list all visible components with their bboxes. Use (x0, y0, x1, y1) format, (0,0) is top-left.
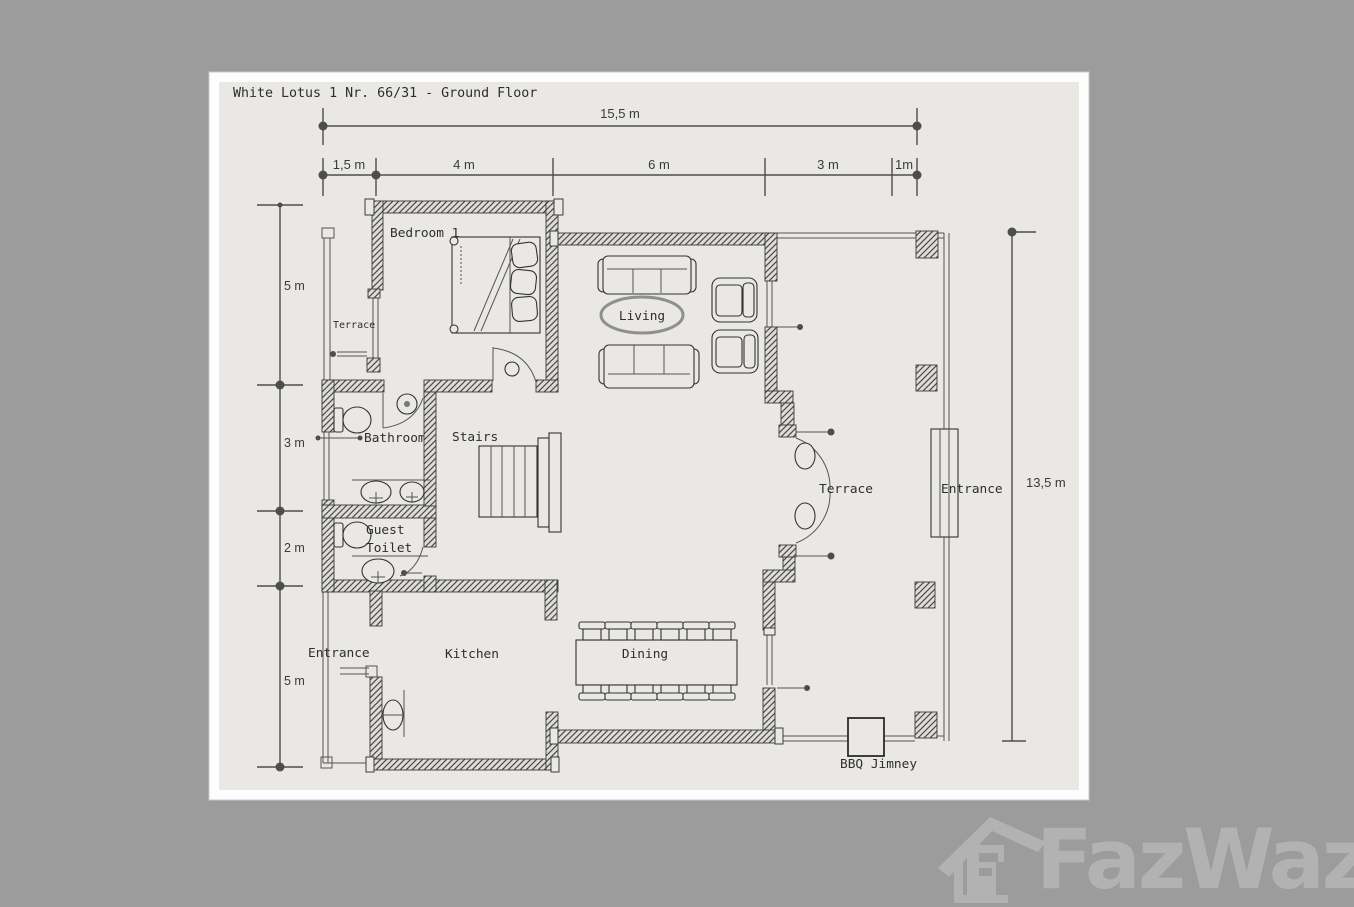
dim-left-3: 2 m (284, 541, 305, 555)
armchair-bottom (712, 330, 758, 373)
room-label-stairs: Stairs (452, 430, 498, 445)
room-label-dining: Dining (622, 647, 668, 662)
room-label-entrance-right: Entrance (941, 482, 1003, 497)
armchair-top (712, 278, 757, 322)
dim-total-width: 15,5 m (600, 106, 640, 121)
dim-left-1: 5 m (284, 279, 305, 293)
dim-seg-2: 4 m (453, 157, 475, 172)
fazwaz-watermark: FazWaz (938, 811, 1354, 907)
fazwaz-logo-text: FazWaz (1036, 811, 1354, 907)
room-label-bathroom: Bathroom (364, 431, 426, 446)
sofa-bottom (599, 345, 699, 388)
room-label-kitchen: Kitchen (445, 647, 499, 662)
dim-total-height: 13,5 m (1026, 475, 1066, 490)
room-label-entrance-left: Entrance (308, 646, 370, 661)
dim-seg-1: 1,5 m (333, 157, 366, 172)
dim-left-4: 5 m (284, 674, 305, 688)
bed (450, 237, 540, 333)
floorplan-svg: FazWaz White Lotus 1 Nr. 66/31 - Ground … (0, 0, 1354, 907)
room-label-terrace-left: Terrace (333, 320, 375, 331)
room-label-toilet: Toilet (366, 541, 412, 556)
room-label-guest: Guest (366, 523, 405, 538)
room-label-living: Living (619, 309, 665, 324)
room-label-bedroom: Bedroom 1 (390, 226, 459, 241)
dim-left-2: 3 m (284, 436, 305, 450)
room-label-bbq: BBQ Jimney (840, 757, 917, 772)
stairs-steps (479, 433, 561, 532)
dim-seg-3: 6 m (648, 157, 670, 172)
room-label-terrace-right: Terrace (819, 482, 873, 497)
plan-title: White Lotus 1 Nr. 66/31 - Ground Floor (233, 86, 537, 101)
dim-seg-5: 1m (895, 157, 913, 172)
floorplan-canvas: FazWaz White Lotus 1 Nr. 66/31 - Ground … (0, 0, 1354, 907)
dim-seg-4: 3 m (817, 157, 839, 172)
bbq-box (848, 718, 884, 756)
sofa-top (598, 256, 696, 294)
